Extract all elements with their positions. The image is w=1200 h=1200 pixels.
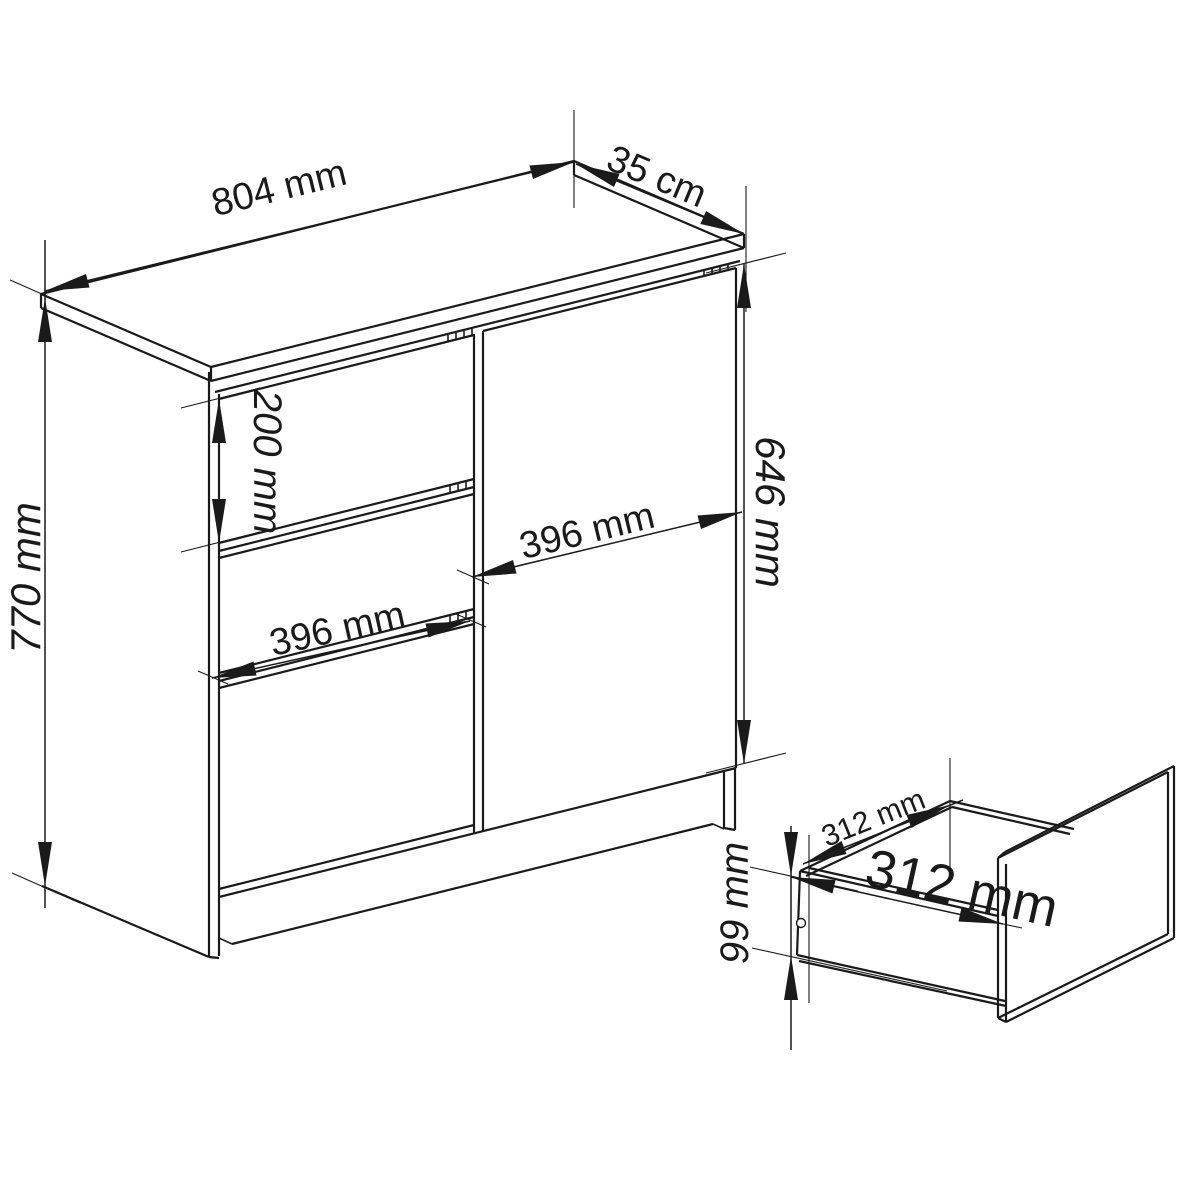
dimension-door-width: 396 mm	[457, 495, 742, 584]
dim-label-overall-height: 770 mm	[2, 502, 49, 654]
edge-notches	[448, 264, 728, 623]
dimension-overall-width: 804 mm	[10, 110, 574, 313]
dimension-drawer-front-width: 396 mm	[198, 594, 486, 684]
dim-label-overall-width: 804 mm	[207, 152, 350, 225]
furniture-dimension-drawing: 804 mm 35 cm 770 mm 200 mm 646 mm	[0, 0, 1200, 1200]
dim-label-drawer-inner-height: 99 mm	[713, 842, 757, 964]
dim-label-door-width: 396 mm	[515, 495, 658, 568]
dim-label-overall-depth: 35 cm	[601, 138, 713, 217]
dimension-door-height: 646 mm	[706, 253, 794, 773]
dimension-overall-height: 770 mm	[2, 240, 80, 908]
dimension-top-drawer-height: 200 mm	[181, 388, 289, 552]
technical-drawing-page: 804 mm 35 cm 770 mm 200 mm 646 mm	[0, 0, 1200, 1200]
dim-label-top-drawer-height: 200 mm	[245, 389, 289, 535]
drawer-hole-mark	[797, 919, 806, 928]
dim-label-drawer-inner-width: 312 mm	[860, 838, 1063, 939]
dim-label-drawer-front-width: 396 mm	[266, 594, 409, 665]
dim-label-door-height: 646 mm	[747, 436, 794, 588]
